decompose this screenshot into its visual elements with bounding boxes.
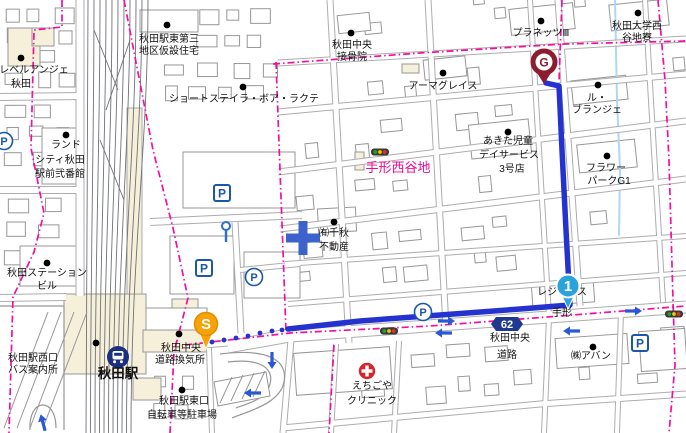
map-label-senshu-fudosan: 不動産 [319,240,349,253]
map-label-akita-eki-higashi-daisan: 地区仮設住宅 [139,44,199,57]
map-label-planets-iii: プラネッツⅢ [513,27,570,39]
poi-dot [93,340,100,347]
map-label-akita-chuo-doro-kankisho: 秋田中央 [161,341,201,354]
map-label-akita-station-building: 秋田ステーション [7,266,87,279]
parking-icon[interactable]: P [214,185,230,201]
poi-dot [63,132,70,139]
poi-dot [240,84,247,91]
poi-dot [505,129,512,136]
map-label-akita-eki-higashi-daisan: 秋田駅東第三 [139,32,199,45]
parking-letter: P [200,262,208,276]
poi-dot [348,30,355,37]
map-label-akita-jido-day-service: デイサービス [479,148,539,161]
map-label-le-boulanger: ブランジェ [572,103,622,116]
route-62-badge: 62 [491,317,523,331]
map-label-akita-chuo-sekkotsuin: 接骨院 [337,50,367,63]
map-label-akita-station-building: ビル [37,280,57,292]
map-label-akita-eki-higashiguchi-parking: 秋田駅東口 [159,394,209,407]
poi-dot [440,70,447,77]
waypoint-number: 1 [564,278,572,295]
route-62-number: 62 [501,319,513,331]
parking-icon[interactable]: P [632,335,648,351]
map-label-le-boulanger: ル・ [587,93,607,104]
poi-dot [44,260,51,267]
map-label-avan: ㈱アバン [571,350,611,362]
start-letter: S [201,316,211,333]
poi-dot [590,344,597,351]
poi-dot [164,22,171,29]
poi-dot [604,153,611,160]
map-label-land-city-akita: 駅前弐番館 [35,167,85,180]
map-canvas[interactable]: PPPPPP秋田駅東第三地区仮設住宅レベルアンジェ秋田秋田中央接骨院プラネッツⅢ… [0,0,686,433]
traffic-light-icon [380,328,398,335]
poi-dot [18,55,25,62]
map-label-akita-eki-higashiguchi-parking: 自転車等駐車場 [147,408,217,421]
map-label-land-city-akita: シティ秋田 [35,153,84,166]
parking-letter: P [250,272,257,284]
poi-dot [179,387,186,394]
traffic-light-icon [665,311,683,318]
poi-dot [635,10,642,17]
poi-dot [176,331,183,338]
map-label-akita-univ-nishiyachi-ryo: 谷地寮 [622,31,652,44]
map-label-flower-park-g1: フラワー [586,162,626,174]
parking-letter: P [636,337,644,351]
traffic-light-icon [371,149,389,156]
parking-circle-icon[interactable]: P [246,269,263,286]
map-label-echigoya-clinic: えちごや [352,379,392,392]
map-label-short-stay-la-boa-lacte: ショートステイラ・ボア・ラクテ [169,93,319,105]
map-label-akita-jido-day-service: 3号店 [499,162,525,175]
map-viewport[interactable]: PPPPPP秋田駅東第三地区仮設住宅レベルアンジェ秋田秋田中央接骨院プラネッツⅢ… [0,0,686,433]
map-label-akita-chuo-sekkotsuin: 秋田中央 [332,38,372,51]
station-icon[interactable] [107,346,129,368]
map-label-level-ange-akita: レベルアンジェ [0,64,69,76]
map-label-akita-jido-day-service: あきた児童 [483,134,533,147]
parking-letter: P [419,307,426,319]
map-label-echigoya-clinic: クリニック [347,395,397,407]
map-label-akita-univ-nishiyachi-ryo: 秋田大学西 [612,19,662,32]
map-label-level-ange-akita: 秋田 [11,77,31,90]
poi-dot [538,18,545,25]
map-label-akita-chuo-doro: 道路 [497,348,517,361]
clinic-icon[interactable] [358,362,376,380]
parking-icon[interactable]: P [196,260,212,276]
map-label-armagrace: アーマグレイス [408,79,477,92]
parking-letter: P [218,187,226,201]
parking-circle-icon[interactable]: P [0,133,13,150]
parking-letter: P [0,136,7,148]
goal-letter: G [539,56,548,70]
map-label-akita-eki-nishiguchi-bus: バス案内所 [8,363,58,376]
map-label-akita-chuo-doro-kankisho: 道路換気所 [155,353,205,366]
poi-dot [331,219,338,226]
parking-circle-icon[interactable]: P [415,304,432,321]
poi-dot [595,82,602,89]
map-label-flower-park-g1: パークG1 [587,175,631,187]
area-label-tegata-nishiyachi: 手形西谷地 [365,160,430,175]
map-label-land-city-akita: ランド [51,139,81,151]
map-label-akita-chuo-doro: 秋田中央 [490,331,530,344]
station-label: 秋田駅 [98,365,139,381]
map-label-akita-eki-nishiguchi-bus: 秋田駅西口 [8,351,58,364]
map-label-senshu-fudosan: ㈲千秋 [319,226,349,239]
